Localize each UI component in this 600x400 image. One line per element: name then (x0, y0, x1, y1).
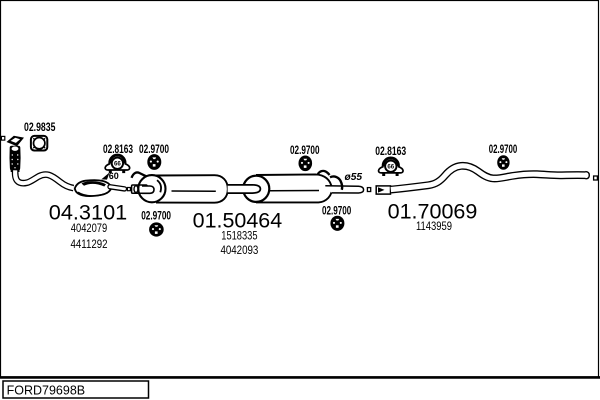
svg-text:02.9700: 02.9700 (290, 143, 320, 157)
svg-text:66: 66 (387, 164, 394, 171)
svg-text:4411292: 4411292 (71, 237, 108, 251)
svg-text:02.9700: 02.9700 (139, 142, 169, 156)
svg-text:02.9835: 02.9835 (24, 120, 56, 134)
svg-text:02.8163: 02.8163 (375, 144, 406, 158)
svg-text:02.9700: 02.9700 (141, 208, 171, 222)
svg-text:1518335: 1518335 (221, 228, 257, 242)
svg-text:02.9700: 02.9700 (322, 204, 352, 218)
svg-text:60: 60 (109, 171, 119, 181)
svg-text:1143959: 1143959 (416, 219, 452, 233)
svg-text:4042093: 4042093 (220, 243, 258, 257)
svg-text:FORD79698B: FORD79698B (7, 383, 86, 397)
svg-text:4042079: 4042079 (71, 221, 108, 235)
svg-text:66: 66 (114, 161, 121, 168)
svg-text:02.9700: 02.9700 (489, 142, 518, 156)
svg-text:02.8163: 02.8163 (103, 142, 133, 156)
svg-text:ø55: ø55 (345, 172, 363, 183)
